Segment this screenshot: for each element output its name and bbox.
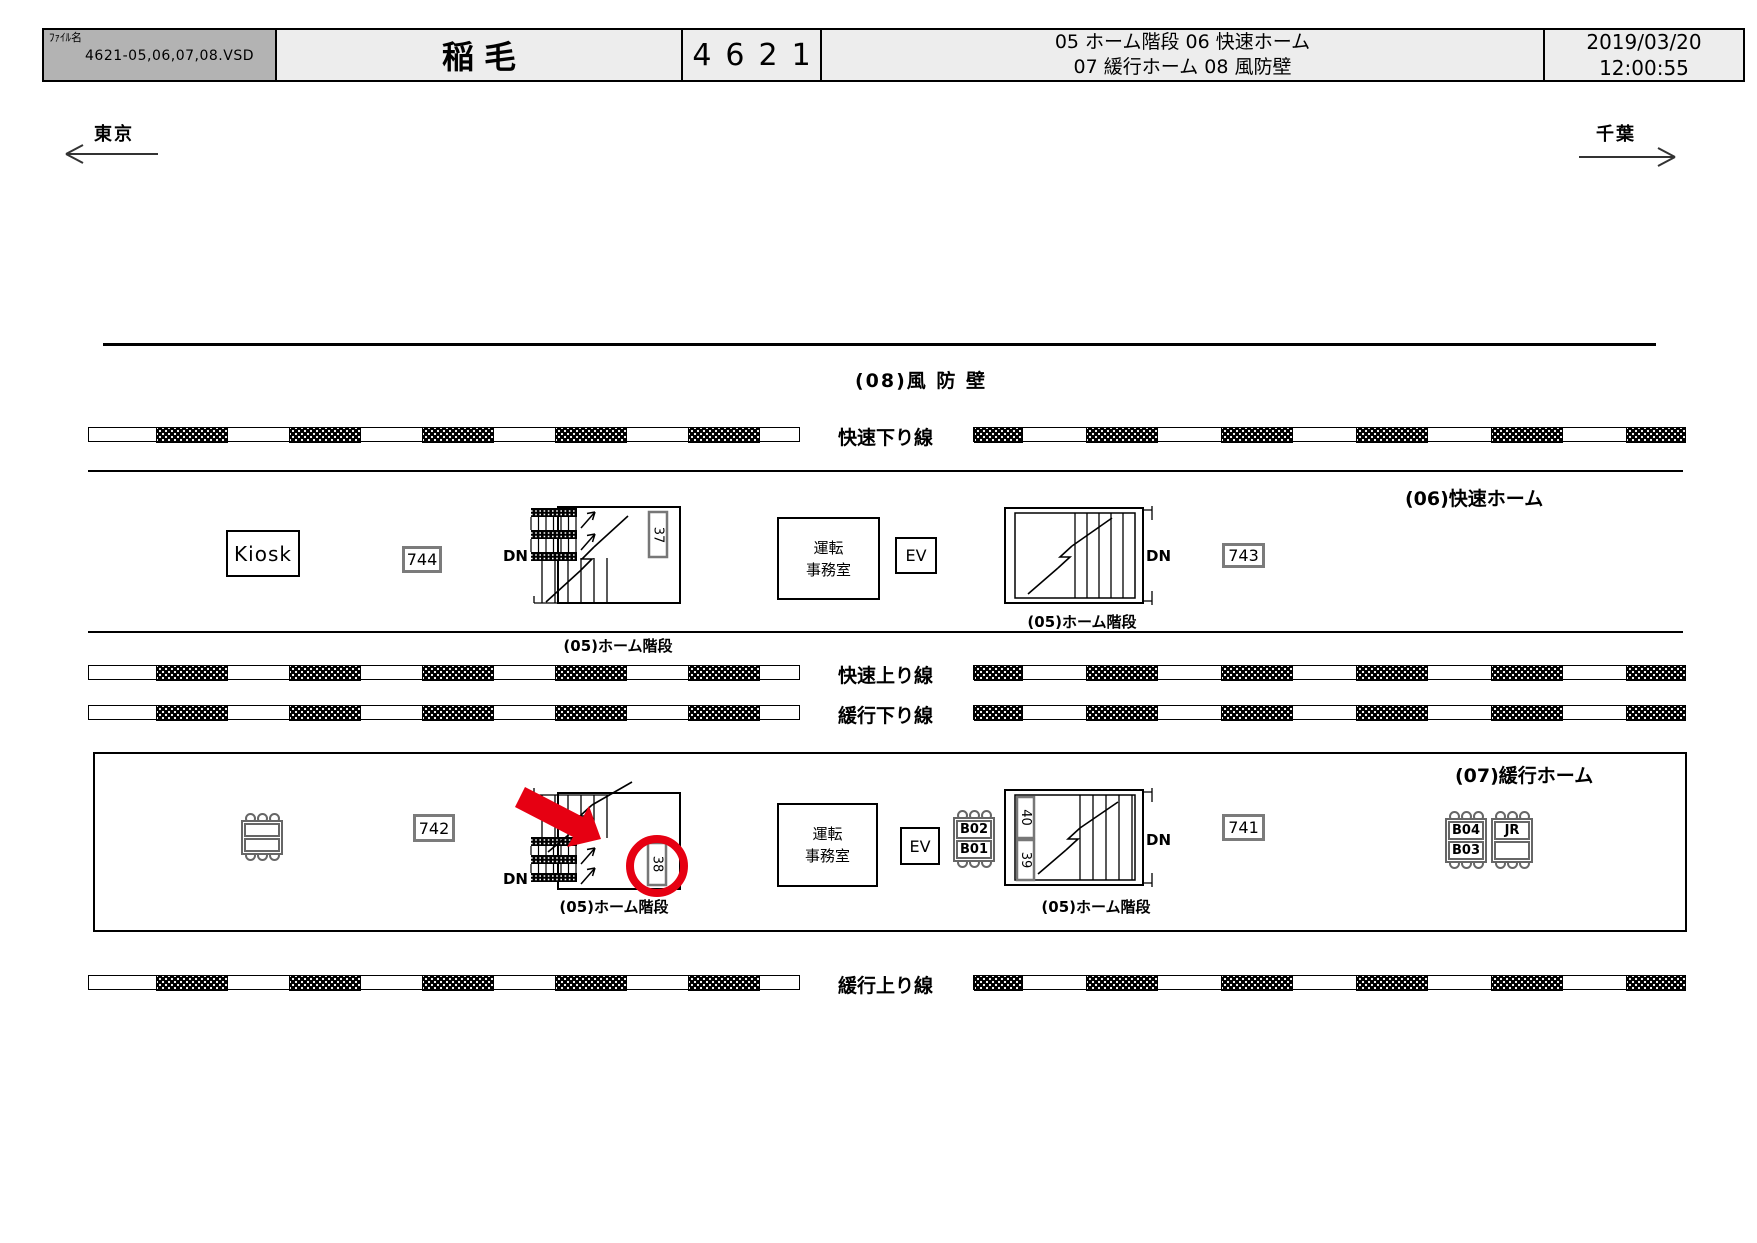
rapid-platform-label: (06)快速ホーム [1405,484,1543,511]
track-hatch-segment [1356,705,1428,721]
bench-body: B04 B03 [1445,818,1487,863]
track-hatch-segment [1626,975,1686,991]
elevator-upper: EV [895,537,937,574]
track-hatch-segment [1491,975,1563,991]
windbreak-wall-label: (08)風 防 壁 [851,366,991,393]
station-name: 稲毛 [277,30,683,80]
equipment-box-741: 741 [1222,814,1265,841]
track-hatch-segment [688,705,760,721]
track-rapid-up-left [88,665,800,680]
bench-b04-b03: B04 B03 [1445,811,1487,870]
track-hatch-segment [1086,975,1158,991]
track-hatch-segment [974,705,1023,721]
track-hatch-segment [974,665,1023,681]
file-name-value: 4621-05,06,07,08.VSD [85,48,270,64]
track-hatch-segment [688,665,760,681]
stairs-caption-upper-east: (05)ホーム階段 [1016,611,1148,632]
track-hatch-segment [1086,427,1158,443]
dn-label-upper-east: DN [1146,547,1174,565]
time-value: 12:00:55 [1599,55,1689,81]
track-hatch-segment [688,975,760,991]
office-line-2: 事務室 [805,845,850,867]
bench-cell [244,838,280,852]
windbreak-wall-line [103,343,1656,346]
bench-cell-b02: B02 [956,820,992,839]
equipment-box-744: 744 [402,546,442,573]
bench-body: JR [1491,818,1533,863]
track-hatch-segment [1626,427,1686,443]
bench-jr: JR [1491,811,1533,870]
track-label-rapid-up: 快速上り線 [798,661,973,688]
track-hatch-segment [555,975,627,991]
track-hatch-segment [1491,665,1563,681]
equipment-box-743: 743 [1222,543,1265,568]
file-name-caption: ﾌｧｲﾙ名 [49,32,270,44]
legend-line-2: 07 緩行ホーム 08 風防壁 [1074,55,1292,80]
track-hatch-segment [1221,427,1293,443]
track-hatch-segment [555,427,627,443]
track-hatch-segment [156,427,228,443]
track-hatch-segment [422,665,494,681]
track-hatch-segment [1356,427,1428,443]
kiosk-box: Kiosk [226,530,300,577]
bench-body: B02 B01 [953,817,995,862]
track-rapid-down-right [973,427,1685,442]
local-platform-label: (07)緩行ホーム [1455,761,1593,788]
bench-b02-b01: B02 B01 [953,810,995,869]
dn-label-lower-west: DN [500,870,528,888]
bench-body [241,820,283,855]
office-line-2: 事務室 [806,559,851,581]
track-rapid-up-right [973,665,1685,680]
track-hatch-segment [555,705,627,721]
annotation-overlay [0,0,1757,1243]
track-hatch-segment [156,975,228,991]
track-hatch-segment [422,427,494,443]
title-block: ﾌｧｲﾙ名 4621-05,06,07,08.VSD 稲毛 4621 05 ホー… [42,28,1745,82]
track-hatch-segment [1086,705,1158,721]
track-hatch-segment [974,427,1023,443]
bench-cell-b03: B03 [1448,841,1484,860]
track-hatch-segment [1221,705,1293,721]
date-value: 2019/03/20 [1586,29,1701,55]
sheet-number: 4621 [683,30,822,80]
equipment-box-742: 742 [413,814,455,842]
file-name-cell: ﾌｧｲﾙ名 4621-05,06,07,08.VSD [44,30,277,80]
track-label-local-up: 緩行上り線 [798,971,973,998]
track-hatch-segment [1221,665,1293,681]
station-diagram-page: ﾌｧｲﾙ名 4621-05,06,07,08.VSD 稲毛 4621 05 ホー… [0,0,1757,1243]
office-line-1: 運転 [813,537,843,559]
track-hatch-segment [289,975,361,991]
stairs-lower-west: 38 [528,780,688,892]
office-line-1: 運転 [812,823,842,845]
track-hatch-segment [1626,665,1686,681]
elevator-lower: EV [900,827,940,865]
bench-cell-b01: B01 [956,840,992,859]
stair-number-40: 40 [1018,809,1033,826]
track-hatch-segment [289,665,361,681]
track-local-up-right [973,975,1685,990]
stair-number-37: 37 [651,527,666,544]
stairs-caption-lower-east: (05)ホーム階段 [1030,896,1162,917]
stairs-upper-west: 37 [528,504,688,616]
track-hatch-segment [1221,975,1293,991]
track-hatch-segment [289,427,361,443]
datetime-cell: 2019/03/20 12:00:55 [1545,30,1743,80]
track-hatch-segment [422,705,494,721]
track-hatch-segment [555,665,627,681]
track-hatch-segment [1626,705,1686,721]
stairs-caption-upper-west: (05)ホーム階段 [552,635,684,656]
bench-cell-jr: JR [1494,821,1530,840]
tokyo-arrow-icon [60,140,165,166]
bench-cell-empty [1494,841,1530,860]
track-hatch-segment [422,975,494,991]
legend-cell: 05 ホーム階段 06 快速ホーム 07 緩行ホーム 08 風防壁 [822,30,1545,80]
track-local-up-left [88,975,800,990]
track-hatch-segment [1356,975,1428,991]
dn-label-lower-east: DN [1146,831,1174,849]
track-hatch-segment [1491,427,1563,443]
track-label-rapid-down: 快速下り線 [798,423,973,450]
rapid-platform-bottom-edge [88,631,1683,633]
bench-west [241,813,283,862]
stairs-upper-east [1000,504,1170,609]
track-hatch-segment [688,427,760,443]
track-label-local-down: 緩行下り線 [798,701,973,728]
operation-office-upper: 運転 事務室 [777,517,880,600]
track-hatch-segment [156,665,228,681]
stairs-caption-lower-west: (05)ホーム階段 [548,896,680,917]
track-hatch-segment [289,705,361,721]
track-hatch-segment [1086,665,1158,681]
chiba-arrow-icon [1575,142,1683,168]
stair-number-38: 38 [650,856,665,873]
track-hatch-segment [1491,705,1563,721]
stair-number-39: 39 [1018,852,1033,869]
track-hatch-segment [156,705,228,721]
legend-line-1: 05 ホーム階段 06 快速ホーム [1055,30,1310,55]
operation-office-lower: 運転 事務室 [777,803,878,887]
stairs-lower-east: 40 39 [1000,782,1170,889]
dn-label-upper-west: DN [500,547,528,565]
track-rapid-down-left [88,427,800,442]
bench-cell [244,823,280,837]
rapid-platform-top-edge [88,470,1683,472]
track-local-down-left [88,705,800,720]
bench-cell-b04: B04 [1448,821,1484,840]
track-hatch-segment [974,975,1023,991]
track-hatch-segment [1356,665,1428,681]
track-local-down-right [973,705,1685,720]
